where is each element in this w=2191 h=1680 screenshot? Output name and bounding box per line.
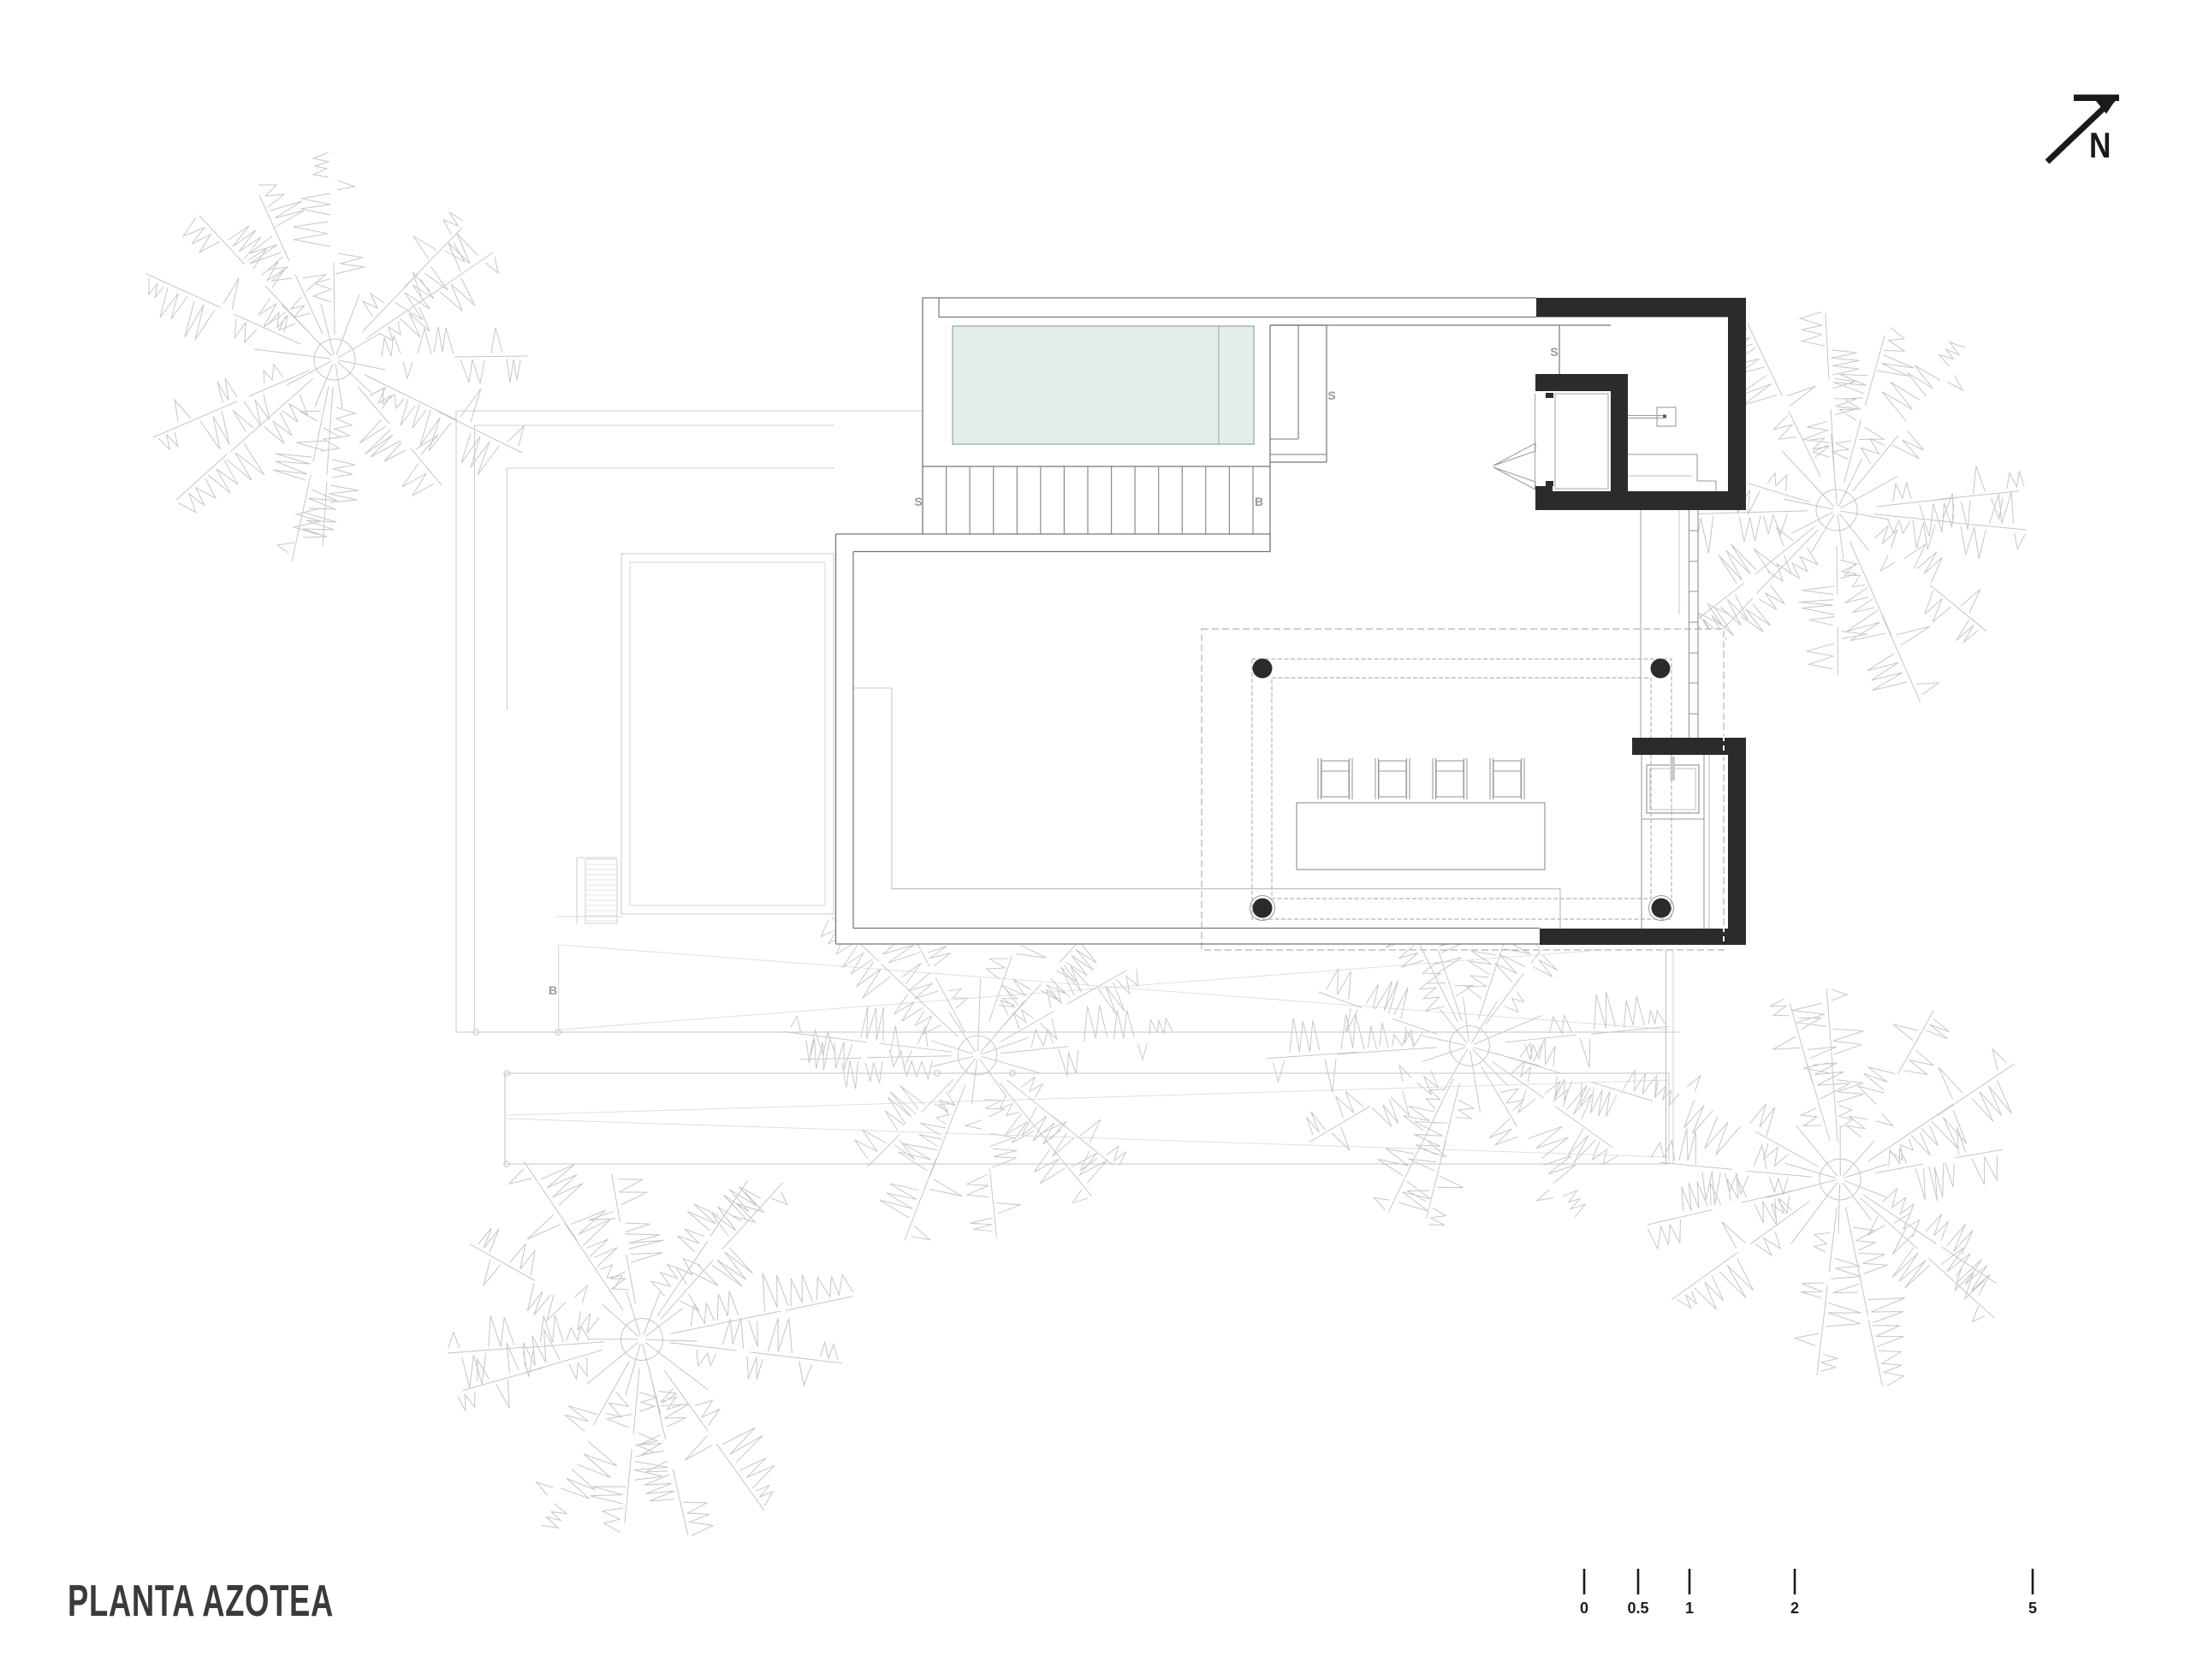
svg-text:0: 0 — [1580, 1600, 1588, 1617]
svg-text:S: S — [914, 495, 922, 508]
svg-text:B: B — [1255, 495, 1263, 508]
svg-text:S: S — [1550, 345, 1558, 359]
svg-text:PLANTA AZOTEA: PLANTA AZOTEA — [68, 1575, 334, 1625]
svg-text:S: S — [1327, 389, 1335, 402]
svg-text:5: 5 — [2028, 1600, 2037, 1617]
svg-text:N: N — [2089, 126, 2111, 166]
svg-text:B: B — [549, 983, 557, 997]
svg-text:1: 1 — [1685, 1600, 1694, 1617]
svg-text:2: 2 — [1790, 1600, 1799, 1617]
svg-text:0.5: 0.5 — [1627, 1600, 1648, 1617]
